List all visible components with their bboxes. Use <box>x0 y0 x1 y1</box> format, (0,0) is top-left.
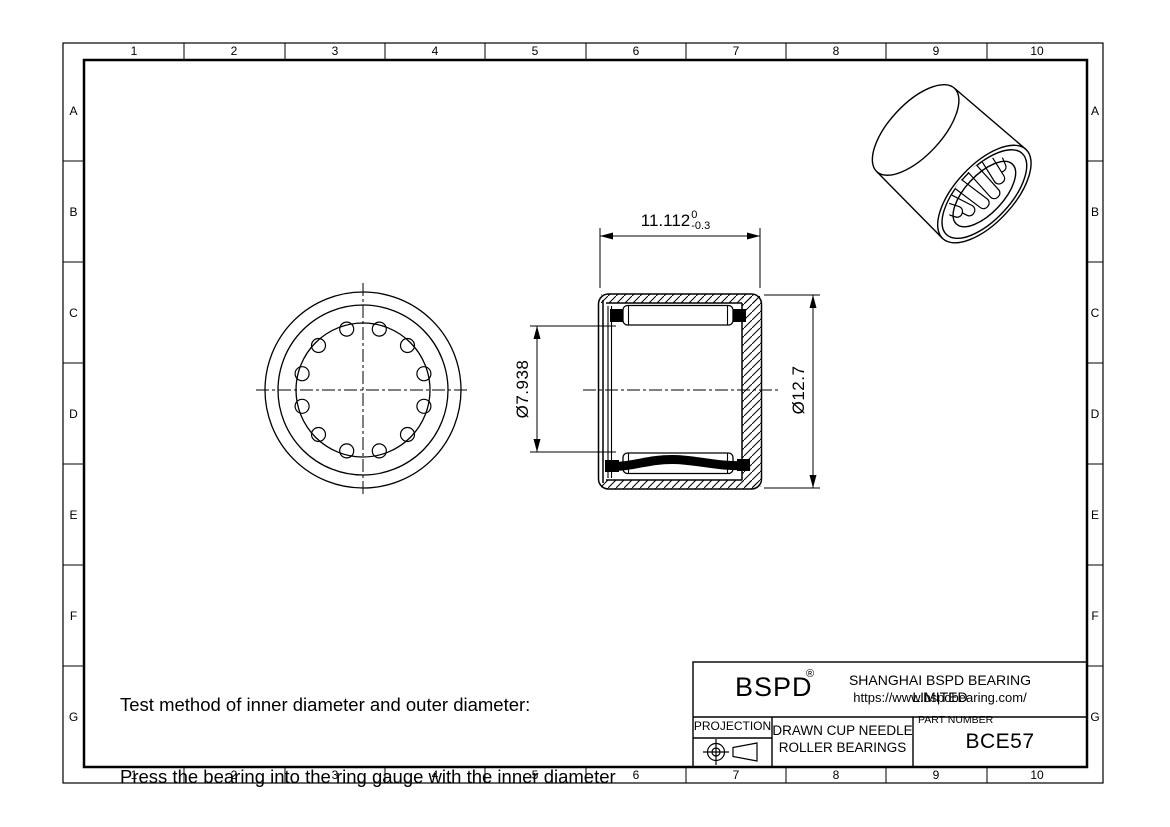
zone-label: 1 <box>84 43 184 60</box>
zone-label: 5 <box>485 43 585 60</box>
dimension-width <box>600 228 760 288</box>
zone-label: D <box>1087 363 1103 464</box>
front-view <box>256 283 470 497</box>
zone-label: 4 <box>385 43 485 60</box>
zone-label: G <box>63 666 84 767</box>
note-line: Test method of inner diameter and outer … <box>120 693 616 717</box>
zone-label: 2 <box>184 43 284 60</box>
bore-diameter-text: Ø7.938 <box>513 360 533 419</box>
zone-label: 3 <box>285 43 385 60</box>
zone-label: 8 <box>786 767 886 784</box>
product-name: DRAWN CUP NEEDLE ROLLER BEARINGS <box>772 722 913 756</box>
bottom-roller <box>605 453 750 474</box>
zone-label: A <box>1087 60 1103 161</box>
zone-label: C <box>1087 262 1103 363</box>
company-logo: BSPD <box>735 672 813 703</box>
test-method-notes: Test method of inner diameter and outer … <box>120 645 616 827</box>
zone-label: A <box>63 60 84 161</box>
isometric-view <box>855 68 1047 259</box>
zone-label: C <box>63 262 84 363</box>
width-dimension-text: 11.112 0 -0.3 <box>588 209 763 233</box>
zone-label: F <box>63 565 84 666</box>
width-tol-lower: -0.3 <box>691 221 710 232</box>
zone-label: 8 <box>786 43 886 60</box>
projection-label: PROJECTION <box>693 719 772 733</box>
zone-label: B <box>1087 161 1103 262</box>
company-website: https://www.bspdbearing.com/ <box>820 690 1060 705</box>
note-line: Press the bearing into the ring gauge wi… <box>120 765 616 789</box>
zone-label: 9 <box>886 43 986 60</box>
product-line: DRAWN CUP NEEDLE <box>772 722 913 739</box>
engineering-drawing-sheet: 1 2 3 4 5 6 7 8 9 10 1 2 3 4 5 6 7 8 9 1… <box>0 0 1170 827</box>
zone-label: F <box>1087 565 1103 666</box>
zone-label: 7 <box>686 43 786 60</box>
part-number-label: PART NUMBER <box>918 714 993 726</box>
zone-label: 10 <box>987 43 1087 60</box>
zone-label: 9 <box>886 767 986 784</box>
zone-label: G <box>1087 666 1103 767</box>
zone-label: 10 <box>987 767 1087 784</box>
zone-label: 6 <box>586 43 686 60</box>
centerlines <box>256 283 470 497</box>
registered-mark: ® <box>806 668 814 680</box>
section-view <box>583 294 778 489</box>
outer-diameter-text: Ø12.7 <box>789 366 809 415</box>
zone-label: B <box>63 161 84 262</box>
width-value: 11.112 <box>641 209 690 233</box>
part-number: BCE57 <box>913 730 1087 754</box>
zone-label: E <box>63 464 84 565</box>
third-angle-projection-icon <box>703 739 757 765</box>
top-roller <box>610 306 746 326</box>
zone-label: E <box>1087 464 1103 565</box>
product-line: ROLLER BEARINGS <box>772 739 913 756</box>
zone-label: 7 <box>686 767 786 784</box>
zone-label: D <box>63 363 84 464</box>
